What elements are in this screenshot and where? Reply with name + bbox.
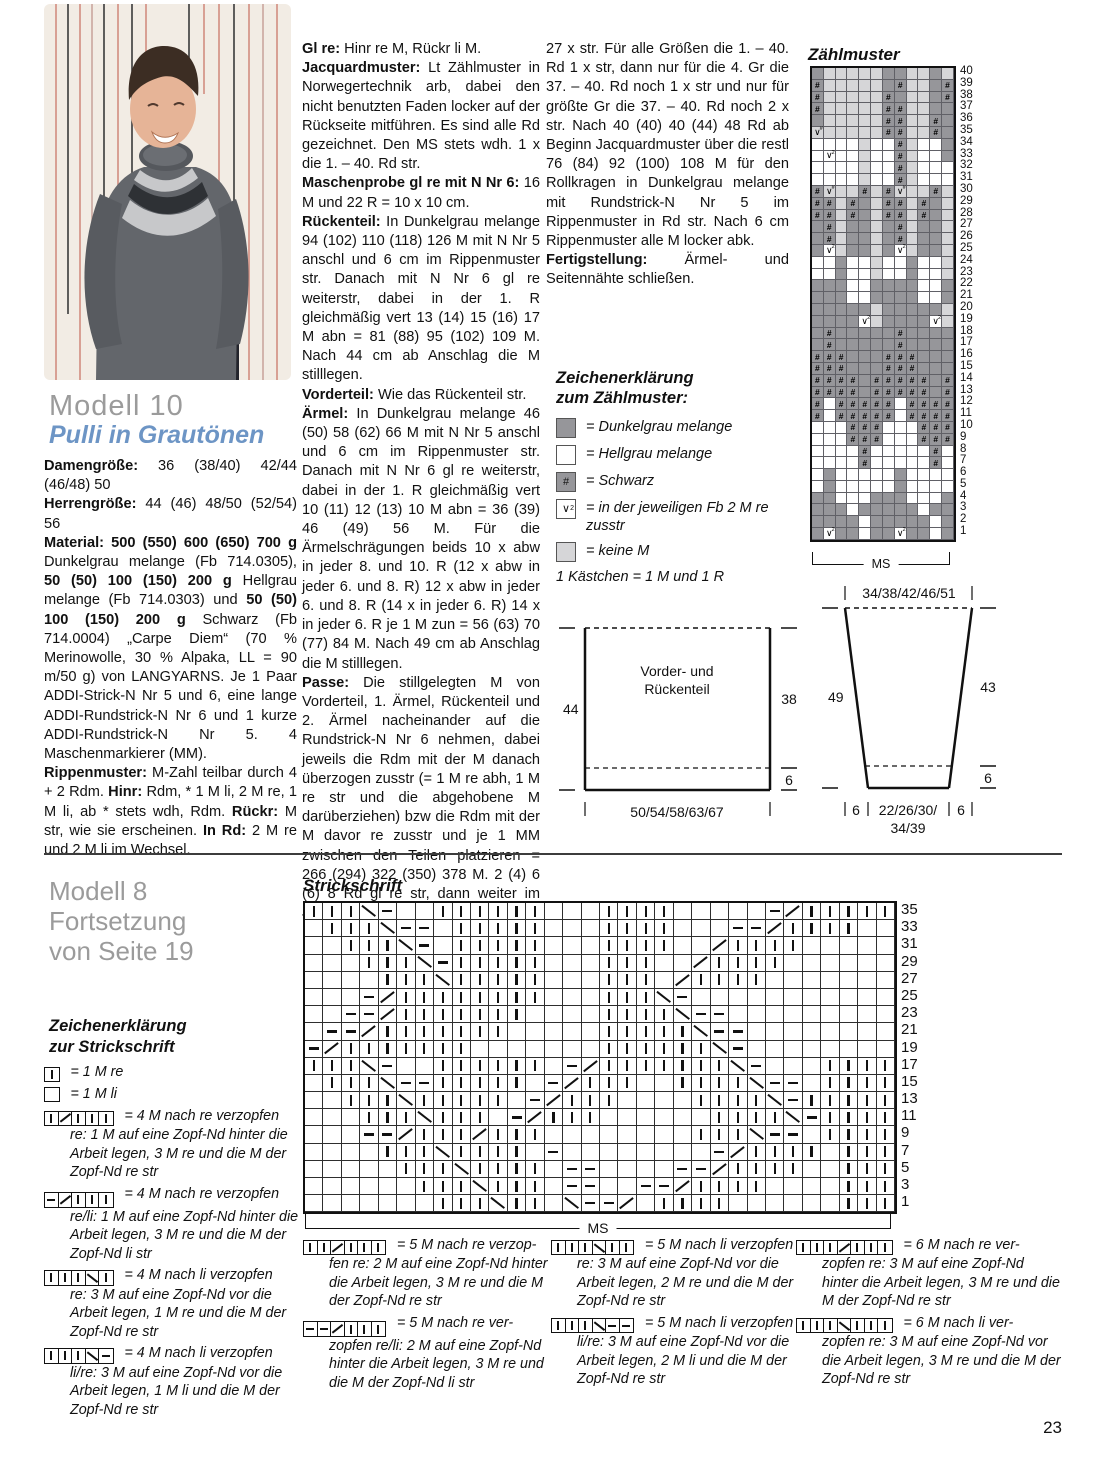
legend-entry: = 5 M nach li verzopfenre: 3 M auf eine … bbox=[551, 1236, 799, 1311]
chart-cell bbox=[836, 528, 848, 540]
chart-cell bbox=[895, 280, 907, 292]
chart-cell bbox=[748, 1161, 766, 1178]
chart-cell bbox=[907, 516, 919, 528]
chart-cell bbox=[434, 1075, 452, 1092]
chart-cell bbox=[489, 1023, 507, 1040]
chart-cell bbox=[711, 955, 729, 972]
zaehlmuster-legend-title: Zeichenerklärung zum Zählmuster: bbox=[556, 368, 796, 408]
chart-row: 2∨2∨ bbox=[812, 528, 954, 540]
chart-cell: # bbox=[812, 375, 824, 387]
chart-cell bbox=[942, 103, 954, 115]
chart-cell bbox=[545, 1126, 563, 1143]
chart-cell bbox=[434, 972, 452, 989]
chart-cell bbox=[563, 1058, 581, 1075]
chart-row: ###### bbox=[812, 434, 954, 446]
chart-cell bbox=[655, 920, 673, 937]
chart-cell bbox=[847, 328, 859, 340]
chart-cell bbox=[545, 1178, 563, 1195]
chart-cell bbox=[824, 446, 836, 458]
chart-cell bbox=[895, 493, 907, 505]
chart-cell bbox=[379, 1023, 397, 1040]
chart-cell bbox=[942, 210, 954, 222]
chart-cell bbox=[871, 186, 883, 198]
chart-cell: # bbox=[812, 351, 824, 363]
chart-cell bbox=[489, 1126, 507, 1143]
chart-cell bbox=[942, 304, 954, 316]
chart-cell bbox=[305, 1126, 323, 1143]
chart-cell: 2∨ bbox=[930, 316, 942, 328]
chart-cell bbox=[711, 937, 729, 954]
bold-text: Rückenteil: bbox=[302, 214, 381, 230]
chart-cell bbox=[526, 937, 544, 954]
chart-cell bbox=[871, 481, 883, 493]
paragraph: Jacquardmuster: Lt Zählmuster in Norwege… bbox=[302, 59, 540, 174]
chart-cell: # bbox=[812, 398, 824, 410]
chart-cell bbox=[803, 1058, 821, 1075]
chart-cell bbox=[323, 1144, 341, 1161]
chart-cell bbox=[930, 339, 942, 351]
chart-cell bbox=[304, 1241, 318, 1255]
chart-cell bbox=[692, 1178, 710, 1195]
chart-cell bbox=[836, 210, 848, 222]
chart-cell bbox=[692, 1006, 710, 1023]
chart-row: ########## bbox=[812, 375, 954, 387]
chart-cell bbox=[45, 1112, 59, 1126]
chart-cell bbox=[858, 1178, 876, 1195]
chart-cell: # bbox=[895, 339, 907, 351]
chart-cell bbox=[836, 469, 848, 481]
chart-cell bbox=[918, 221, 930, 233]
chart-row bbox=[305, 1092, 895, 1109]
chart-cell bbox=[918, 339, 930, 351]
chart-cell bbox=[563, 1178, 581, 1195]
chart-cell bbox=[600, 1178, 618, 1195]
chart-cell bbox=[847, 351, 859, 363]
sleeve-schematic: 34/38/42/46/51 49 43 6 6 22/26/30/ 34/39… bbox=[820, 572, 1107, 840]
chart-cell bbox=[748, 1195, 766, 1212]
chart-cell bbox=[836, 257, 848, 269]
chart-cell: # bbox=[883, 363, 895, 375]
chart-cell bbox=[526, 1058, 544, 1075]
chart-cell: # bbox=[812, 387, 824, 399]
chart-cell: # bbox=[883, 210, 895, 222]
chart-cell bbox=[877, 1075, 895, 1092]
legend-item: = Hellgrau melange bbox=[556, 445, 796, 465]
chart-cell: # bbox=[930, 446, 942, 458]
chart-cell bbox=[942, 257, 954, 269]
chart-cell bbox=[526, 1195, 544, 1212]
chart-row: ### bbox=[812, 80, 954, 92]
bold-text: Fertigstellung: bbox=[546, 252, 647, 268]
chart-cell bbox=[655, 1126, 673, 1143]
chart-cell bbox=[582, 1041, 600, 1058]
chart-cell bbox=[942, 446, 954, 458]
chart-row bbox=[305, 972, 895, 989]
chart-cell bbox=[883, 257, 895, 269]
chart-row bbox=[812, 504, 954, 516]
chart-cell bbox=[674, 920, 692, 937]
chart-cell bbox=[342, 955, 360, 972]
chart-cell bbox=[692, 989, 710, 1006]
chart-cell: # bbox=[812, 103, 824, 115]
chart-cell bbox=[871, 351, 883, 363]
chart-cell bbox=[847, 446, 859, 458]
chart-cell bbox=[582, 955, 600, 972]
chart-cell bbox=[748, 1144, 766, 1161]
chart-cell bbox=[812, 280, 824, 292]
chart-cell bbox=[674, 1041, 692, 1058]
legend-label: = Dunkelgrau melange bbox=[586, 418, 732, 436]
chart-cell bbox=[871, 316, 883, 328]
chart-cell bbox=[379, 1161, 397, 1178]
chart-cell bbox=[637, 1178, 655, 1195]
chart-cell bbox=[305, 920, 323, 937]
chart-cell bbox=[729, 1144, 747, 1161]
svg-text:49: 49 bbox=[828, 689, 844, 705]
chart-cell: # bbox=[824, 198, 836, 210]
chart-cell bbox=[847, 80, 859, 92]
chart-cell bbox=[508, 1195, 526, 1212]
chart-cell bbox=[942, 139, 954, 151]
chart-cell bbox=[545, 1144, 563, 1161]
chart-cell bbox=[907, 127, 919, 139]
chart-cell: 2∨ bbox=[824, 245, 836, 257]
chart-cell bbox=[907, 139, 919, 151]
chart-cell bbox=[342, 1092, 360, 1109]
row-number: 25 bbox=[901, 987, 918, 1004]
chart-cell bbox=[729, 1161, 747, 1178]
chart-cell bbox=[471, 989, 489, 1006]
legend-head: = 6 M nach re ver- bbox=[900, 1237, 1020, 1253]
chart-cell bbox=[942, 363, 954, 375]
chart-cell bbox=[840, 989, 858, 1006]
chart-cell bbox=[99, 1193, 113, 1207]
chart-cell bbox=[305, 972, 323, 989]
chart-cell bbox=[655, 1041, 673, 1058]
chart-cell bbox=[907, 92, 919, 104]
chart-cell bbox=[883, 516, 895, 528]
chart-row bbox=[812, 493, 954, 505]
chart-cell bbox=[600, 972, 618, 989]
chart-cell bbox=[859, 387, 871, 399]
bold-text: Maschenprobe gl re mit N Nr 6: bbox=[302, 175, 519, 191]
chart-cell: # bbox=[859, 186, 871, 198]
chart-cell bbox=[637, 955, 655, 972]
chart-cell bbox=[871, 127, 883, 139]
chart-cell bbox=[582, 972, 600, 989]
chart-cell bbox=[416, 1161, 434, 1178]
chart-cell bbox=[86, 1193, 100, 1207]
chart-cell bbox=[379, 903, 397, 920]
chart-cell bbox=[859, 481, 871, 493]
chart-cell bbox=[883, 174, 895, 186]
chart-cell bbox=[563, 955, 581, 972]
chart-cell bbox=[729, 920, 747, 937]
chart-cell bbox=[858, 1126, 876, 1143]
chart-cell bbox=[582, 1178, 600, 1195]
chart-cell bbox=[824, 1241, 838, 1255]
chart-cell bbox=[637, 920, 655, 937]
bold-text: In Rd: bbox=[203, 823, 246, 839]
chart-cell bbox=[618, 903, 636, 920]
chart-cell bbox=[434, 1092, 452, 1109]
chart-cell bbox=[360, 1006, 378, 1023]
chart-cell bbox=[766, 1058, 784, 1075]
chart-cell bbox=[600, 1023, 618, 1040]
chart-cell bbox=[895, 410, 907, 422]
legend-head: = 5 M nach li verzopfen bbox=[641, 1237, 793, 1253]
chart-cell bbox=[766, 972, 784, 989]
chart-cell bbox=[453, 989, 471, 1006]
chart-cell bbox=[674, 1006, 692, 1023]
chart-cell bbox=[824, 434, 836, 446]
chart-cell bbox=[766, 1092, 784, 1109]
chart-cell bbox=[836, 316, 848, 328]
paragraph: Rippenmuster: M-Zahl teilbar durch 4 + 2… bbox=[44, 764, 297, 860]
chart-cell bbox=[637, 1195, 655, 1212]
chart-cell bbox=[655, 1058, 673, 1075]
chart-cell bbox=[692, 903, 710, 920]
chart-cell bbox=[358, 1322, 372, 1336]
chart-cell bbox=[847, 516, 859, 528]
chart-cell bbox=[766, 1006, 784, 1023]
chart-cell bbox=[674, 989, 692, 1006]
chart-cell bbox=[600, 1126, 618, 1143]
chart-cell bbox=[453, 937, 471, 954]
chart-cell bbox=[895, 446, 907, 458]
row-number: 21 bbox=[901, 1021, 918, 1038]
chart-cell bbox=[821, 1126, 839, 1143]
legend-entry: = 6 M nach li ver-zopfen re: 3 M auf ein… bbox=[796, 1314, 1062, 1389]
chart-cell bbox=[397, 1092, 415, 1109]
chart-cell bbox=[600, 989, 618, 1006]
chart-cell bbox=[453, 1144, 471, 1161]
text: Lt Zählmuster in Norwegertechnik arb, da… bbox=[302, 60, 540, 172]
chart-cell bbox=[593, 1319, 607, 1333]
chart-cell bbox=[748, 903, 766, 920]
legend-entry: = 5 M nach re ver-zopfen re/li: 2 M auf … bbox=[303, 1314, 551, 1393]
chart-cell bbox=[847, 363, 859, 375]
row-number: 35 bbox=[901, 901, 918, 918]
chart-cell bbox=[508, 1023, 526, 1040]
zaehlmuster-ms-bracket: MS bbox=[812, 552, 950, 565]
chart-cell bbox=[397, 972, 415, 989]
chart-cell bbox=[711, 1075, 729, 1092]
chart-cell bbox=[942, 516, 954, 528]
chart-cell bbox=[766, 1041, 784, 1058]
chart-cell bbox=[674, 937, 692, 954]
chart-cell bbox=[859, 328, 871, 340]
strickschrift-legend-left: = 1 M re = 1 M li = 4 M nach re verzopfe… bbox=[44, 1063, 302, 1422]
chart-cell bbox=[942, 504, 954, 516]
chart-cell bbox=[729, 903, 747, 920]
chart-cell bbox=[416, 1023, 434, 1040]
chart-cell bbox=[840, 903, 858, 920]
chart-cell bbox=[918, 504, 930, 516]
chart-cell bbox=[847, 139, 859, 151]
chart-cell bbox=[600, 1144, 618, 1161]
chart-cell bbox=[803, 1041, 821, 1058]
chart-cell bbox=[930, 257, 942, 269]
chart-cell bbox=[471, 1023, 489, 1040]
chart-cell bbox=[729, 1058, 747, 1075]
chart-cell: # bbox=[859, 410, 871, 422]
zaehlmuster-legend: Zeichenerklärung zum Zählmuster: = Dunke… bbox=[556, 368, 796, 585]
chart-cell bbox=[836, 186, 848, 198]
chart-cell bbox=[883, 280, 895, 292]
chart-row: #∨### bbox=[812, 127, 954, 139]
chart-cell bbox=[748, 1023, 766, 1040]
chart-cell: # bbox=[847, 398, 859, 410]
chart-cell bbox=[883, 233, 895, 245]
text: 27 x str. Für alle Größen die 1. – 40. R… bbox=[546, 41, 789, 249]
chart-cell bbox=[877, 1195, 895, 1212]
chart-cell bbox=[847, 269, 859, 281]
chart-cell bbox=[655, 989, 673, 1006]
chart-cell bbox=[907, 280, 919, 292]
chart-cell bbox=[600, 920, 618, 937]
legend-head: = 1 M li bbox=[67, 1086, 117, 1102]
chart-cell bbox=[305, 1109, 323, 1126]
chart-cell bbox=[883, 162, 895, 174]
chart-cell bbox=[489, 937, 507, 954]
chart-cell bbox=[821, 1092, 839, 1109]
chart-cell bbox=[930, 387, 942, 399]
chart-cell bbox=[847, 221, 859, 233]
row-number: 19 bbox=[960, 314, 973, 326]
legend-label: = Hellgrau melange bbox=[586, 445, 712, 463]
chart-cell bbox=[397, 1006, 415, 1023]
chart-cell bbox=[859, 221, 871, 233]
chart-cell bbox=[471, 955, 489, 972]
instructions-column-1: Damengröße: 36 (38/40) 42/44 (46/48) 50H… bbox=[44, 457, 297, 860]
svg-text:43: 43 bbox=[980, 679, 996, 695]
chart-cell bbox=[871, 115, 883, 127]
chart-cell bbox=[840, 920, 858, 937]
chart-cell bbox=[907, 80, 919, 92]
bold-text: Damengröße: bbox=[44, 458, 138, 474]
svg-text:44: 44 bbox=[563, 701, 579, 717]
chart-cell bbox=[821, 955, 839, 972]
chart-cell bbox=[930, 80, 942, 92]
chart-cell bbox=[858, 1058, 876, 1075]
chart-cell bbox=[930, 174, 942, 186]
chart-cell bbox=[836, 198, 848, 210]
chart-cell bbox=[812, 434, 824, 446]
chart-cell bbox=[847, 127, 859, 139]
chart-cell bbox=[918, 516, 930, 528]
chart-cell bbox=[877, 903, 895, 920]
chart-cell: # bbox=[907, 363, 919, 375]
chart-row bbox=[305, 1109, 895, 1126]
chart-cell bbox=[372, 1322, 386, 1336]
chart-cell bbox=[397, 1109, 415, 1126]
chart-cell bbox=[895, 457, 907, 469]
chart-cell bbox=[895, 304, 907, 316]
chart-cell bbox=[397, 1041, 415, 1058]
section-divider bbox=[44, 853, 1062, 855]
chart-cell bbox=[836, 68, 848, 80]
chart-cell bbox=[618, 920, 636, 937]
chart-cell: # bbox=[907, 398, 919, 410]
chart-cell bbox=[526, 1006, 544, 1023]
chart-cell bbox=[397, 903, 415, 920]
chart-cell bbox=[379, 1109, 397, 1126]
chart-cell bbox=[416, 1178, 434, 1195]
chart-cell: # bbox=[871, 375, 883, 387]
chart-cell bbox=[729, 937, 747, 954]
chart-cell bbox=[563, 1023, 581, 1040]
chart-cell bbox=[918, 68, 930, 80]
chart-cell: # bbox=[824, 339, 836, 351]
chart-cell bbox=[871, 80, 883, 92]
chart-cell: # bbox=[930, 457, 942, 469]
chart-cell bbox=[877, 1144, 895, 1161]
row-number: 25 bbox=[960, 243, 973, 255]
bold-text: Rippenmuster: bbox=[44, 765, 147, 781]
bold-text: Vorderteil: bbox=[302, 387, 374, 403]
paragraph: Herrengröße: 44 (46) 48/50 (52/54) 56 bbox=[44, 495, 297, 533]
chart-cell bbox=[545, 920, 563, 937]
chart-cell bbox=[618, 955, 636, 972]
chart-cell bbox=[416, 1075, 434, 1092]
paragraph: Ärmel: In Dunkelgrau melange 46 (50) 58 … bbox=[302, 405, 540, 674]
chart-cell bbox=[748, 1058, 766, 1075]
row-number: 15 bbox=[901, 1073, 918, 1090]
chart-cell bbox=[489, 972, 507, 989]
chart-cell bbox=[434, 1126, 452, 1143]
chart-cell bbox=[847, 469, 859, 481]
chart-cell: # bbox=[883, 127, 895, 139]
chart-cell bbox=[360, 920, 378, 937]
chart-cell bbox=[59, 1193, 73, 1207]
chart-row: ##∨###∨# bbox=[812, 186, 954, 198]
chart-row bbox=[812, 481, 954, 493]
chart-cell: # bbox=[895, 127, 907, 139]
chart-cell bbox=[416, 937, 434, 954]
chart-cell bbox=[942, 351, 954, 363]
row-number: 1 bbox=[901, 1193, 918, 1210]
legend-entry: = 5 M nach li verzopfenli/re: 3 M auf ei… bbox=[551, 1314, 799, 1389]
chart-cell bbox=[930, 280, 942, 292]
legend-head: = 5 M nach re verzop- bbox=[393, 1237, 536, 1253]
chart-cell bbox=[453, 1195, 471, 1212]
chart-cell: # bbox=[812, 210, 824, 222]
chart-cell bbox=[434, 1144, 452, 1161]
chart-cell bbox=[812, 339, 824, 351]
chart-cell bbox=[471, 1161, 489, 1178]
chart-cell bbox=[859, 210, 871, 222]
chart-cell bbox=[99, 1112, 113, 1126]
text: Hinr re M, Rückr li M. bbox=[340, 41, 481, 57]
chart-cell bbox=[824, 162, 836, 174]
chart-cell bbox=[526, 1092, 544, 1109]
chart-cell: # bbox=[907, 351, 919, 363]
chart-cell bbox=[766, 1109, 784, 1126]
magazine-page: Modell 10 Pulli in Grautönen Damengröße:… bbox=[0, 0, 1107, 1476]
chart-cell bbox=[824, 481, 836, 493]
chart-cell bbox=[582, 1092, 600, 1109]
chart-cell bbox=[824, 292, 836, 304]
chart-cell bbox=[453, 1023, 471, 1040]
chart-cell bbox=[397, 955, 415, 972]
chart-cell: # bbox=[824, 363, 836, 375]
chart-cell bbox=[471, 903, 489, 920]
chart-cell bbox=[821, 1161, 839, 1178]
chart-cell: # bbox=[930, 434, 942, 446]
chart-cell bbox=[637, 989, 655, 1006]
chart-cell bbox=[674, 972, 692, 989]
